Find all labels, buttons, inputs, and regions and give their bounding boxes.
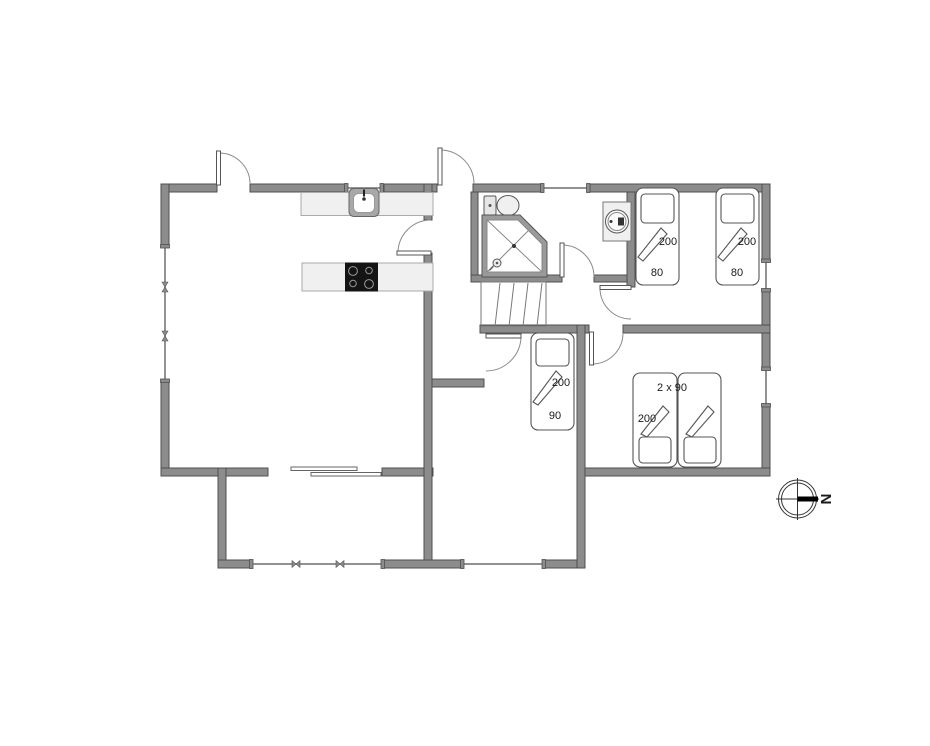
door-arc — [440, 150, 474, 184]
door-arc — [219, 153, 250, 184]
wall-segment — [218, 560, 252, 568]
toilet-icon — [484, 196, 519, 216]
door-arc — [398, 220, 431, 253]
bed1-length-label: 200 — [659, 236, 677, 248]
bed2-length-label: 200 — [738, 236, 756, 248]
floor-plan: 200 80 200 80 200 90 2 x 90 200 N — [0, 0, 930, 746]
wall-segment — [577, 468, 770, 476]
door-leaf — [217, 151, 221, 185]
bed3-width-label: 90 — [549, 410, 561, 422]
door-leaf — [438, 148, 442, 185]
door-leaf — [397, 251, 431, 255]
stairs — [481, 282, 546, 326]
bed3-length-label: 200 — [552, 377, 570, 389]
floor-plan-page: 200 80 200 80 200 90 2 x 90 200 N — [0, 0, 930, 746]
bed1-width-label: 80 — [651, 267, 663, 279]
wall-segment — [161, 184, 169, 246]
wall-segment — [577, 325, 585, 568]
wall-segment — [762, 406, 770, 476]
bathroom — [482, 196, 631, 278]
wall-segment — [383, 560, 463, 568]
washing-machine-icon — [603, 202, 631, 241]
sliding-door — [291, 467, 381, 476]
door-leaf — [560, 243, 564, 277]
sink-icon — [349, 189, 379, 217]
compass-north-label: N — [817, 494, 834, 505]
wall-segment — [432, 379, 484, 387]
wall-segment — [762, 184, 770, 261]
bed2-width-label: 80 — [731, 267, 743, 279]
door-arc — [600, 288, 631, 319]
door-leaf — [600, 286, 631, 290]
stove-icon — [345, 263, 378, 292]
door-arc — [592, 333, 623, 364]
wall-segment — [161, 382, 169, 476]
window-mullions — [162, 282, 344, 568]
wall-segment — [471, 192, 478, 282]
door-leaf — [486, 334, 521, 338]
kitchen — [301, 189, 433, 292]
shower-icon — [482, 215, 547, 277]
compass-north-icon: N — [776, 478, 834, 520]
wall-segment — [424, 253, 432, 568]
door-arc — [486, 336, 521, 371]
double-bed-length-label: 200 — [638, 413, 656, 425]
double-bed-size-label: 2 x 90 — [657, 382, 687, 394]
wall-segment — [161, 468, 268, 476]
wall-segment — [623, 325, 770, 333]
wall-segment — [473, 184, 541, 192]
door-leaf — [590, 332, 594, 365]
wall-segment — [250, 184, 345, 192]
door-arc — [562, 245, 594, 277]
wall-segment — [218, 468, 226, 568]
